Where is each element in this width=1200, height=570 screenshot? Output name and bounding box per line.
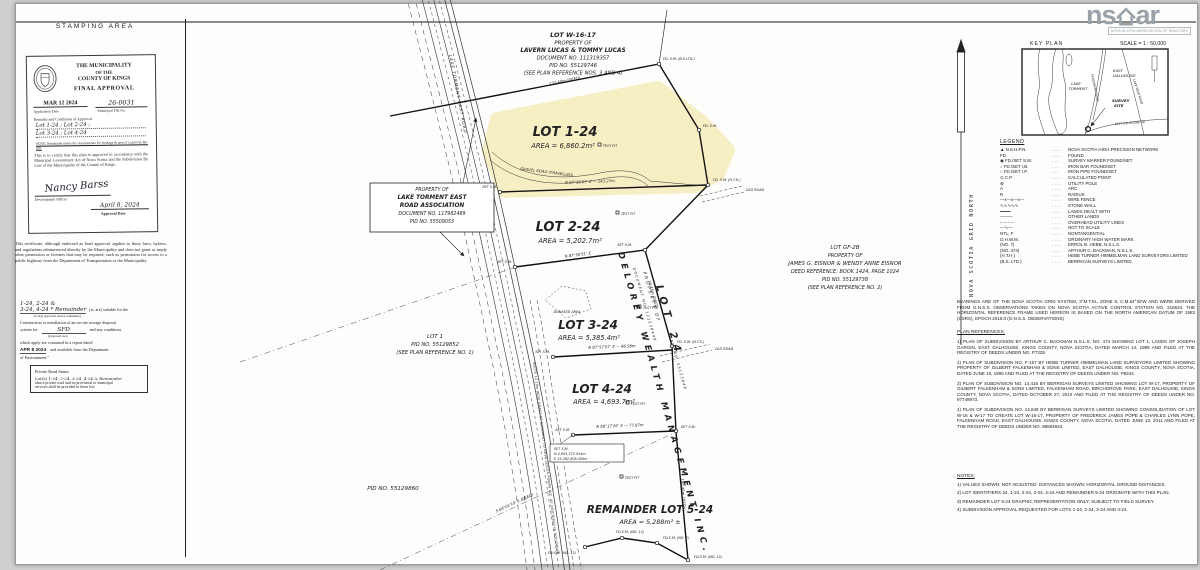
stamp-org-1: THE MUNICIPALITY <box>59 62 149 69</box>
sewage-approval-block: 1-24, 2-24 & 3-24, 4-24 * Remainder (is,… <box>20 301 168 360</box>
note-item: 3) REMAINDER LOT 5-24 GRAPHIC REPRESENTA… <box>957 499 1197 504</box>
lot1-l3: (SEE PLAN REFERENCE NO. 1) <box>396 350 473 356</box>
sewage-env-text: of Environment." <box>20 355 168 360</box>
sewage-and-conditions: and any conditions <box>90 327 122 332</box>
stamping-panel: STAMPING AREA THE MUNICIPALITY OF THE CO… <box>5 19 186 557</box>
legend-dots: . . . . <box>1052 259 1068 265</box>
dev-officer-label: Development Officer <box>35 197 67 201</box>
key-plan: KEY PLAN SCALE = 1 : 50,000 LAKE TORMENT… <box>1022 41 1168 135</box>
plan-references-block: PLAN REFERENCES: 1) PLAN OF SUBDIVISION … <box>957 330 1195 429</box>
remarks-label: Remarks and Conditions of Approval <box>34 117 92 122</box>
lot1-l2: PID NO. 55129852 <box>411 342 459 348</box>
marker-label: FD. S.M. <box>703 124 717 128</box>
dim-label: N 88°17'26″ E — 77.87m <box>596 422 644 429</box>
lot-w1617-title: LOT W-16-17 <box>550 31 596 39</box>
stamp-date: MAR 12 2024 <box>33 100 87 108</box>
gf2b-l4: DEED REFERENCE: BOOK 1424, PAGE 1024 <box>791 269 899 275</box>
lot2-24-area: AREA = 5,202.7m² <box>537 237 602 245</box>
plan-reference-item: 4) PLAN OF SUBDIVISION NO. 14,848 BY BER… <box>957 407 1195 429</box>
marker-label: FD.S.M. (NO. 12) <box>616 530 644 534</box>
lot-w1617-doc: DOCUMENT NO. 111319357 <box>537 56 610 62</box>
coord-l1: SET S.M. <box>554 447 569 451</box>
assoc-l1: PROPERTY OF <box>415 187 448 193</box>
nsar-logo-subtext: NOVA SCOTIA ASSOCIATION OF REALTORS <box>1108 27 1191 35</box>
lot3-24-name: LOT 3-24 <box>558 318 618 332</box>
legend-row: (B.S. LTD.). . . .BERRIGAN SURVEYS LIMIT… <box>1000 259 1196 265</box>
marker-label: FD.S.M. (NO. 7) <box>663 536 689 540</box>
approval-date-label: Approval Date <box>101 212 126 216</box>
sewage-suitable-text: (is, are) suitable for the <box>89 307 128 312</box>
approval-stamp: THE MUNICIPALITY OF THE COUNTY OF KINGS … <box>26 54 158 234</box>
coord-l2: N 4,953,372.054m <box>554 452 586 456</box>
house-icon <box>1115 5 1137 27</box>
sewage-lots-2: 3-24, 4-24 * Remainder <box>20 307 86 314</box>
stamping-area-label: STAMPING AREA <box>5 23 185 30</box>
sewage-available-text: and available from the Department <box>50 347 108 352</box>
old-road-label: OLD ROAD <box>715 347 734 351</box>
private-road-title: Private Road Status <box>35 369 143 374</box>
assoc-l4: DOCUMENT NO. 117982489 <box>398 211 465 217</box>
stamp-note: NOTE: Remainder meets the requirements f… <box>36 140 148 150</box>
gf2b-l2: PROPERTY OF <box>828 253 863 259</box>
marker-label: SET S.M. <box>555 428 570 432</box>
stamp-certify-text: This is to certify that this plan is app… <box>34 151 148 168</box>
assoc-l3: ROAD ASSOCIATION <box>400 203 465 209</box>
assoc-l5: PID NO. 55509053 <box>410 219 454 225</box>
road-association-box: PROPERTY OF LAKE TORMENT EAST ROAD ASSOC… <box>370 183 494 232</box>
private-road-box: Private Road Status Lot(s) 1-24, 2-24, 3… <box>30 365 148 393</box>
note-item: 2) LOT IDENTIFIERS 24, 1-24, 2-24, 3-24,… <box>957 490 1197 495</box>
test-pit-label: TEST PIT <box>621 212 636 216</box>
key-plan-title: KEY PLAN <box>1030 41 1063 47</box>
pid-bottom: PID NO. 55129860 <box>367 486 419 492</box>
lot-w1617-owner: LAVERN LUCAS & TOMMY LUCAS <box>520 48 625 54</box>
notes-block: NOTES: 1) VALUES SHOWN: NOT ADJUSTED. DI… <box>957 474 1197 513</box>
marker-label: FD.S.M. (NO. 12) <box>694 555 722 559</box>
note-item: 1) VALUES SHOWN: NOT ADJUSTED. DISTANCES… <box>957 482 1197 487</box>
sewage-use-value: SFD <box>42 327 86 334</box>
old-road-label: OLD ROAD <box>746 188 765 192</box>
signature-line <box>35 195 111 197</box>
plan-references-header: PLAN REFERENCES: <box>957 330 1195 335</box>
lot1-highlight <box>489 88 728 191</box>
gf2b-l1: LOT GF-2B <box>830 245 859 251</box>
key-town-2: DALHOUSIE <box>1113 73 1136 78</box>
road-name-label: LAKE TORMENT EAST ROAD <box>448 54 468 134</box>
lot5-24-area: AREA = 5,288m² ± <box>618 518 680 526</box>
notes-header: NOTES: <box>957 474 1197 479</box>
donated-area-label: DONATED AREA <box>554 310 582 314</box>
note-item: 4) SUBDIVISION APPROVAL REQUESTED FOR LO… <box>957 507 1197 512</box>
key-lake-2: TORMENT <box>1069 86 1088 91</box>
road-lines <box>406 0 581 570</box>
dim-label: N 87°57'07″ E — 86.58m <box>588 343 636 350</box>
plan-reference-item: 3) PLAN OF SUBDIVISION NO. 14,416 BY BER… <box>957 381 1195 403</box>
gf2b-l5: PID NO. 55129738 <box>822 277 868 283</box>
gf2b-l3: JAMES G. EISNOR & WENDY ANNE EISNOR <box>787 261 902 267</box>
legend-block: LEGEND ▲ N.S.H.P.N.. . . .NOVA SCOTIA HI… <box>1000 139 1196 264</box>
sewage-system-for: system for <box>20 327 38 332</box>
lot-w1617-line: PROPERTY OF <box>554 41 592 47</box>
marker-label: SET S.M. <box>535 350 550 354</box>
coord-l3: E 25,482,808.500m <box>554 457 588 461</box>
marker-label: FD.S.M. (NO. 12) <box>548 551 576 555</box>
marker-label: SET S.M. <box>617 243 632 247</box>
lot1-24-area: AREA = 6,860.2m² <box>530 142 595 150</box>
remarks-line-2: Lot 3-24 ; Lot 4-24 <box>36 129 146 138</box>
lot3-24-area: AREA = 5,385.4m² <box>557 334 620 342</box>
bearings-note: BEARINGS ARE OF THE NOVA SCOTIA GRID SYS… <box>957 299 1195 321</box>
key-site-2: SITE <box>1114 103 1124 108</box>
marker-label: FD. S.M. (B.S.LTD.) <box>663 57 695 61</box>
municipality-crest-icon <box>32 64 58 94</box>
marker-label: FD. S.M. (N.T.S.) <box>677 340 704 344</box>
sewage-use-sub: (proposed use) <box>48 334 168 338</box>
marker-label: FD. S.M. (H.T.H.) <box>713 178 741 182</box>
key-plan-scale: SCALE = 1 : 50,000 <box>1120 41 1166 47</box>
test-pit-label: TEST PIT <box>631 402 646 406</box>
plan-reference-item: 2) PLAN OF SUBDIVISION NO. F-157 BY HEBB… <box>957 360 1195 377</box>
sewage-sub-label: (Lot(s) approved and/or remainder) <box>34 314 168 318</box>
municipal-file-label: Municipal File No. <box>98 109 126 113</box>
stamp-org-3: COUNTY OF KINGS <box>59 75 149 82</box>
plan-reference-item: 1) PLAN OF SUBDIVISION BY ARTHUR C. BACK… <box>957 339 1195 356</box>
assoc-l2: LAKE TORMENT EAST <box>397 195 467 201</box>
lot2-24-name: LOT 2-24 <box>536 220 601 235</box>
marker-label: SET S.M. <box>681 425 696 429</box>
sewage-report-date: APR 8 2024 <box>20 348 46 354</box>
certificate-paragraph: This certificate, although endorsed as f… <box>15 241 167 263</box>
stamp-title: FINAL APPROVAL <box>59 85 149 92</box>
test-pit-label: TEST PIT <box>625 476 640 480</box>
lot1-l1: LOT 1 <box>427 334 443 340</box>
stamp-signature: Nancy Barss <box>44 179 109 195</box>
sewage-construction-text: Construction or installation of an on-si… <box>20 320 168 325</box>
marker-label: SET S.M. <box>482 185 497 189</box>
stamp-file-no: 26-0031 <box>95 98 147 108</box>
page: { "left_panel": { "header": "STAMPING AR… <box>0 0 1200 570</box>
legend-desc: BERRIGAN SURVEYS LIMITED <box>1068 259 1196 265</box>
lot4-24-name: LOT 4-24 <box>572 382 632 396</box>
dashed-boundaries <box>240 268 676 570</box>
legend-header: LEGEND <box>1000 139 1196 145</box>
lot4-24-area: AREA = 4,693.7m² <box>572 398 635 406</box>
dim-label: S 64°01'10″ E (DEED) <box>495 492 535 514</box>
test-pit-label: TEST PIT <box>603 144 618 148</box>
application-date-label: Application Date <box>34 109 59 113</box>
sewage-which-text: which apply are contained in a report da… <box>20 340 168 345</box>
dim-label: 132.40m (DEED) <box>549 75 582 86</box>
north-label: NOVA SCOTIA GRID NORTH <box>969 193 975 297</box>
legend-symbol: (B.S. LTD.) <box>1000 259 1052 265</box>
marker-label: SET S.M. <box>497 260 512 264</box>
private-road-line-3: services shall be provided to these lots <box>35 385 143 389</box>
lot-w1617-pid: PID NO. 55129746 <box>549 63 597 69</box>
lot1-24-name: LOT 1-24 <box>533 125 598 140</box>
gf2b-l6: (SEE PLAN REFERENCE NO. 2) <box>808 285 883 291</box>
approval-date-value: April 8, 2024 <box>91 201 149 210</box>
